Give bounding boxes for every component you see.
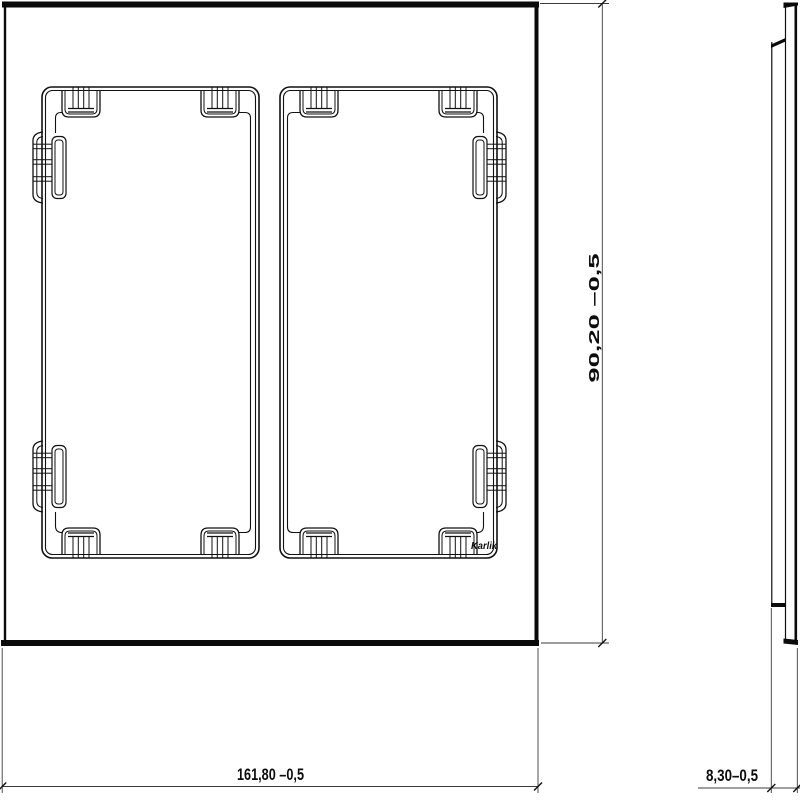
fixing-tab	[62, 528, 100, 558]
opening-inner-contour	[284, 91, 494, 555]
corner-contour	[477, 113, 484, 134]
side-clip	[33, 132, 66, 203]
dimension-width-label: 161,80 –0,5	[237, 766, 304, 784]
fixing-tab	[62, 87, 100, 117]
fixing-tab	[300, 87, 338, 117]
opening-outer-contour	[280, 87, 497, 558]
side-view-rear-bottom-cap	[771, 603, 786, 607]
technical-drawing: Karlik 161,80 –0,5 90,20 –0,5 8,3	[0, 0, 800, 800]
technical-drawing-page: Karlik 161,80 –0,5 90,20 –0,5 8,3	[0, 0, 800, 800]
fixing-tab	[201, 87, 239, 117]
side-clip	[473, 132, 506, 203]
side-clip	[473, 441, 506, 512]
fixing-tab	[300, 528, 338, 558]
opening-right: Karlik	[280, 87, 506, 558]
fixing-tab	[201, 528, 239, 558]
dimension-depth: 8,30–0,5	[698, 608, 800, 793]
corner-contour	[56, 113, 63, 134]
side-clip	[33, 441, 66, 512]
opening-outer-contour	[42, 87, 259, 558]
corner-contour	[477, 512, 484, 533]
dimension-depth-label: 8,30–0,5	[706, 767, 758, 785]
dimension-height: 90,20 –0,5	[540, 0, 609, 647]
opening-left	[33, 87, 259, 558]
side-view-rear-top-cap	[771, 38, 786, 48]
dimension-width: 161,80 –0,5	[0, 648, 542, 793]
side-view	[771, 3, 798, 646]
corner-contour	[288, 113, 301, 533]
front-view: Karlik	[1, 5, 539, 644]
corner-contour	[56, 512, 63, 533]
frame-outline	[1, 5, 539, 644]
fixing-tab	[439, 87, 477, 117]
brand-logo-text: Karlik	[471, 540, 498, 552]
dimension-height-label: 90,20 –0,5	[585, 253, 602, 383]
corner-contour	[239, 113, 251, 533]
opening-inner-contour	[46, 91, 256, 555]
